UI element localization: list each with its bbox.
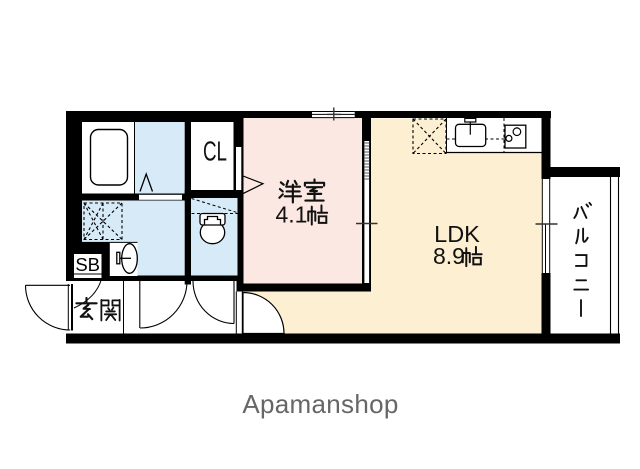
- svg-text:4.1: 4.1: [276, 202, 308, 228]
- svg-text:SB: SB: [75, 254, 100, 275]
- svg-text:Apamanshop: Apamanshop: [242, 389, 398, 419]
- svg-text:CL: CL: [203, 136, 227, 167]
- svg-text:8.9: 8.9: [433, 243, 465, 269]
